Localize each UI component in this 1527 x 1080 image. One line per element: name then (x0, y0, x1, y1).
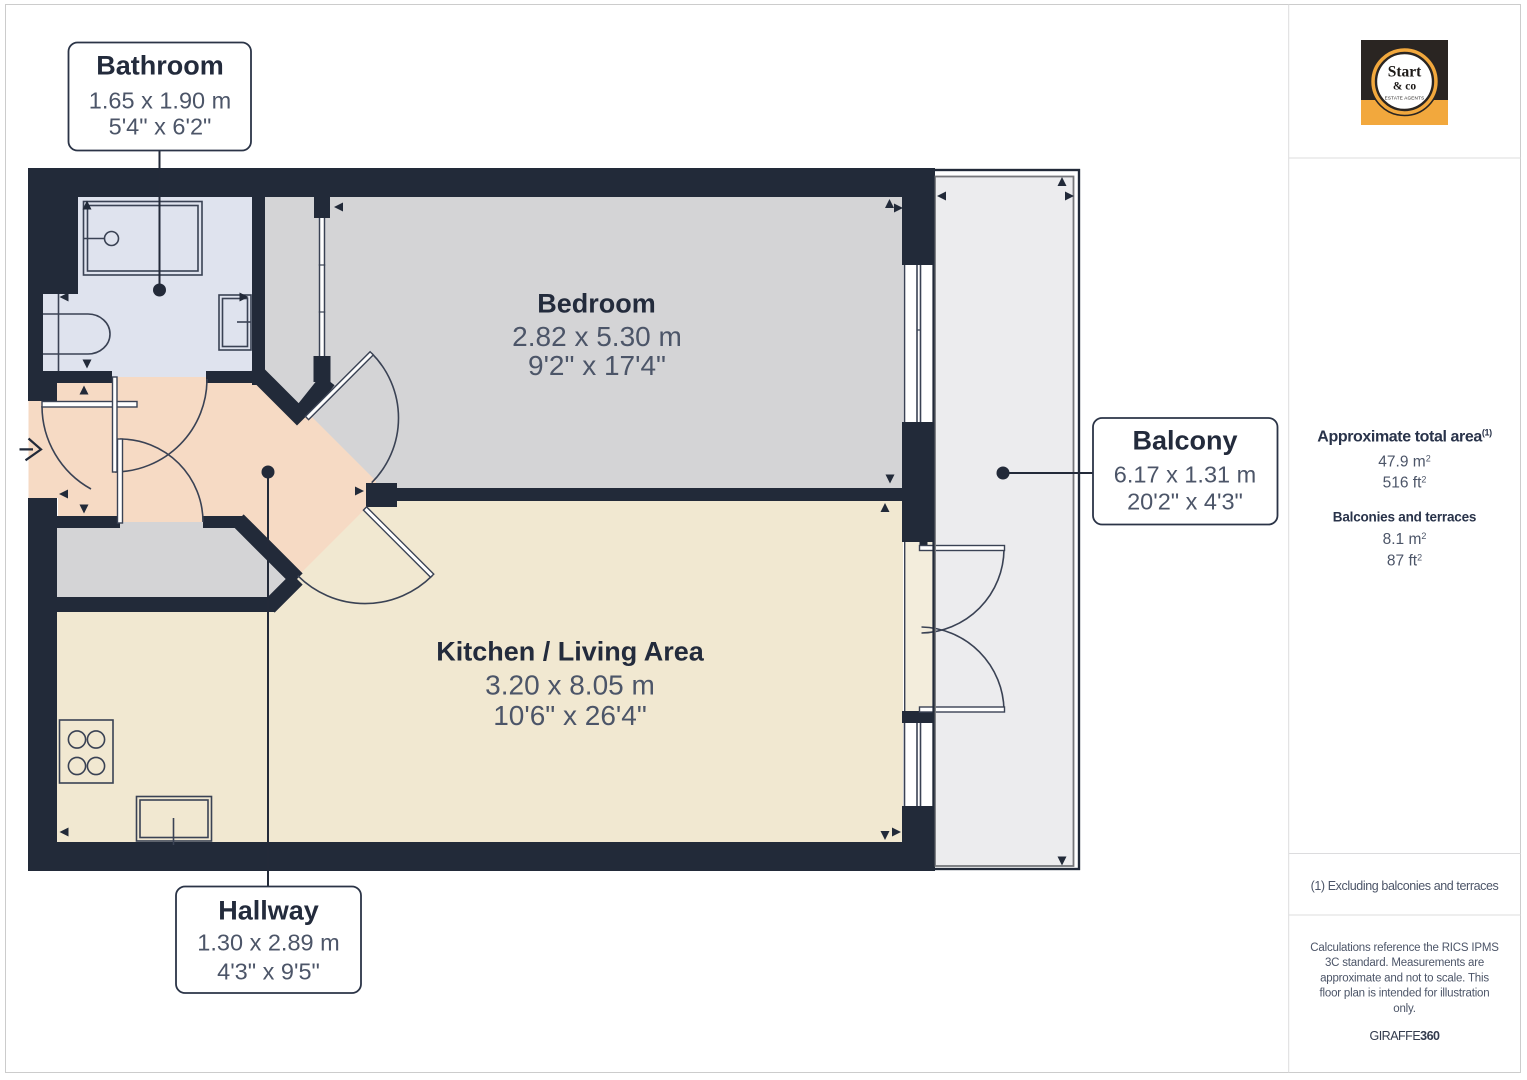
svg-text:Bathroom: Bathroom (96, 51, 224, 81)
svg-text:Kitchen / Living Area: Kitchen / Living Area (436, 637, 705, 667)
svg-text:Hallway: Hallway (218, 896, 319, 926)
svg-text:Start: Start (1388, 64, 1422, 81)
svg-text:floor plan is intended for ill: floor plan is intended for illustration (1320, 988, 1490, 1000)
svg-text:Balcony: Balcony (1132, 426, 1237, 456)
svg-text:Bedroom: Bedroom (537, 289, 656, 319)
svg-text:& co: & co (1393, 81, 1417, 93)
svg-text:approximate and not to scale.: approximate and not to scale. This (1320, 972, 1489, 984)
svg-text:Balconies and terraces: Balconies and terraces (1333, 510, 1476, 525)
svg-text:6.17 x 1.31 m: 6.17 x 1.31 m (1114, 462, 1256, 488)
svg-text:only.: only. (1393, 1003, 1415, 1015)
svg-text:5'4" x 6'2": 5'4" x 6'2" (109, 114, 212, 140)
svg-text:1.30 x 2.89 m: 1.30 x 2.89 m (197, 930, 339, 956)
svg-text:8.1 m2: 8.1 m2 (1383, 531, 1427, 548)
svg-text:3C standard. Measurements are: 3C standard. Measurements are (1325, 957, 1484, 969)
svg-text:GIRAFFE360: GIRAFFE360 (1369, 1029, 1440, 1043)
svg-text:Calculations reference the RIC: Calculations reference the RICS IPMS (1310, 942, 1499, 954)
svg-text:87 ft2: 87 ft2 (1387, 553, 1422, 570)
svg-text:1.65 x 1.90 m: 1.65 x 1.90 m (89, 88, 231, 114)
svg-text:20'2" x 4'3": 20'2" x 4'3" (1127, 489, 1243, 515)
svg-text:47.9 m2: 47.9 m2 (1378, 454, 1430, 471)
svg-text:Approximate total area(1): Approximate total area(1) (1317, 428, 1492, 446)
svg-text:516 ft2: 516 ft2 (1383, 475, 1427, 492)
svg-text:2.82 x 5.30 m: 2.82 x 5.30 m (512, 321, 682, 352)
svg-text:4'3" x 9'5": 4'3" x 9'5" (217, 959, 320, 985)
svg-text:10'6" x 26'4": 10'6" x 26'4" (493, 700, 647, 731)
svg-text:(1) Excluding balconies and te: (1) Excluding balconies and terraces (1311, 879, 1499, 893)
svg-text:9'2" x 17'4": 9'2" x 17'4" (528, 350, 666, 381)
svg-text:ESTATE AGENTS: ESTATE AGENTS (1385, 96, 1425, 101)
svg-text:3.20 x 8.05 m: 3.20 x 8.05 m (485, 670, 655, 701)
